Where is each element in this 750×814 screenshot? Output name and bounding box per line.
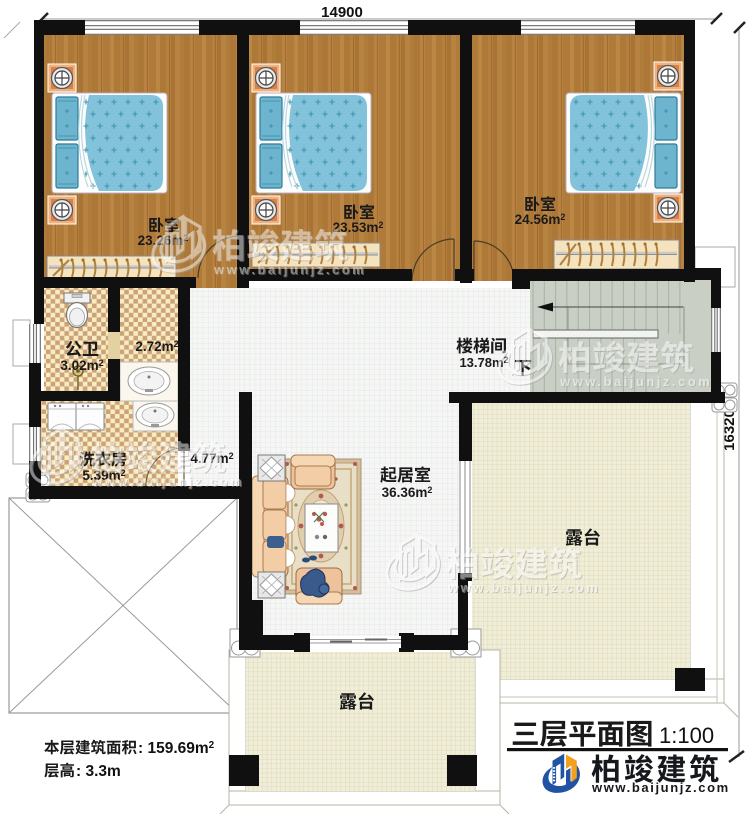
- svg-text:14900: 14900: [321, 4, 363, 21]
- svg-text:www.baijunjz.com: www.baijunjz.com: [591, 780, 730, 795]
- svg-text:3.02m2: 3.02m2: [60, 358, 103, 373]
- svg-text:24.56m2: 24.56m2: [515, 212, 566, 227]
- svg-text:2.72m2: 2.72m2: [135, 339, 178, 354]
- svg-text:36.36m2: 36.36m2: [382, 485, 433, 500]
- svg-text:: 159.69m2: : 159.69m2: [138, 740, 215, 757]
- svg-text:: 3.3m: : 3.3m: [76, 763, 121, 780]
- svg-text:www.baijunjz.com: www.baijunjz.com: [91, 474, 244, 489]
- svg-text:www.baijunjz.com: www.baijunjz.com: [559, 374, 712, 389]
- svg-text:www.baijunjz.com: www.baijunjz.com: [213, 262, 366, 277]
- svg-text:www.baijunjz.com: www.baijunjz.com: [447, 580, 600, 595]
- svg-text:1:100: 1:100: [659, 723, 714, 748]
